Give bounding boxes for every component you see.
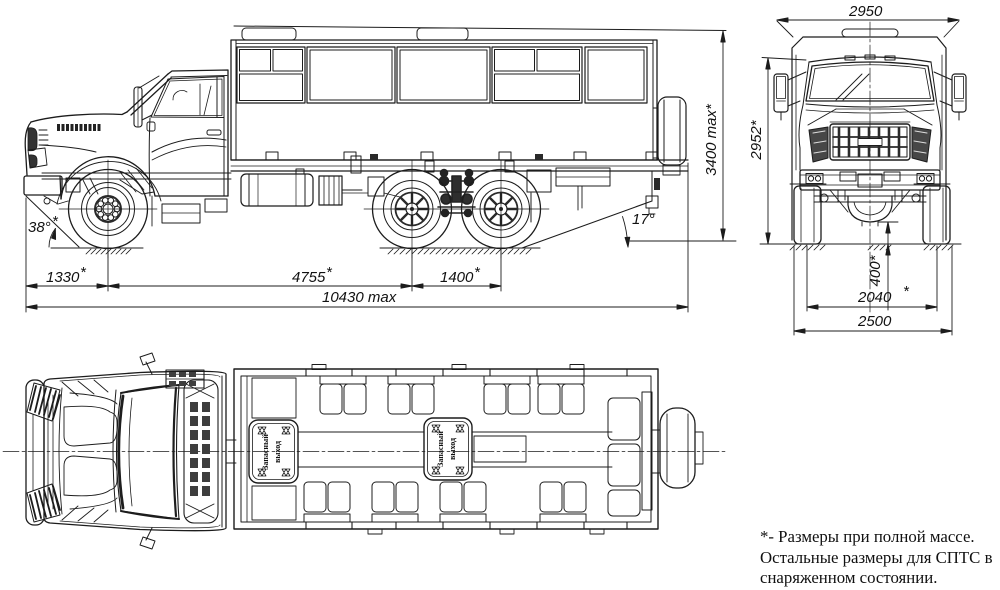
svg-text:1330: 1330 — [46, 269, 80, 286]
svg-text:38°: 38° — [28, 219, 51, 236]
svg-text:10430 max: 10430 max — [322, 289, 397, 306]
svg-text:2950: 2950 — [848, 3, 883, 20]
svg-text:*: * — [474, 264, 481, 281]
svg-text:выход: выход — [273, 441, 282, 463]
svg-text:400*: 400* — [867, 254, 884, 286]
svg-text:1400: 1400 — [440, 269, 474, 286]
svg-text:выход: выход — [448, 438, 457, 460]
svg-text:2040: 2040 — [857, 289, 892, 306]
svg-text:Остальные размеры для СПТС в: Остальные размеры для СПТС в — [760, 548, 993, 567]
svg-text:Запасный: Запасный — [436, 431, 445, 467]
svg-text:*: * — [80, 264, 87, 281]
svg-text:*: * — [52, 213, 59, 230]
svg-text:2500: 2500 — [857, 313, 892, 330]
svg-text:снаряженном состоянии.: снаряженном состоянии. — [760, 568, 937, 587]
svg-text:*: * — [903, 283, 910, 300]
svg-text:17°: 17° — [632, 211, 655, 228]
svg-text:4755: 4755 — [292, 269, 326, 286]
svg-text:2952*: 2952* — [748, 119, 765, 160]
svg-text:*: * — [326, 264, 333, 281]
svg-text:*- Размеры при полной массе.: *- Размеры при полной массе. — [760, 527, 975, 546]
svg-text:3400 max*: 3400 max* — [703, 103, 720, 176]
svg-text:Запасный: Запасный — [261, 434, 270, 470]
